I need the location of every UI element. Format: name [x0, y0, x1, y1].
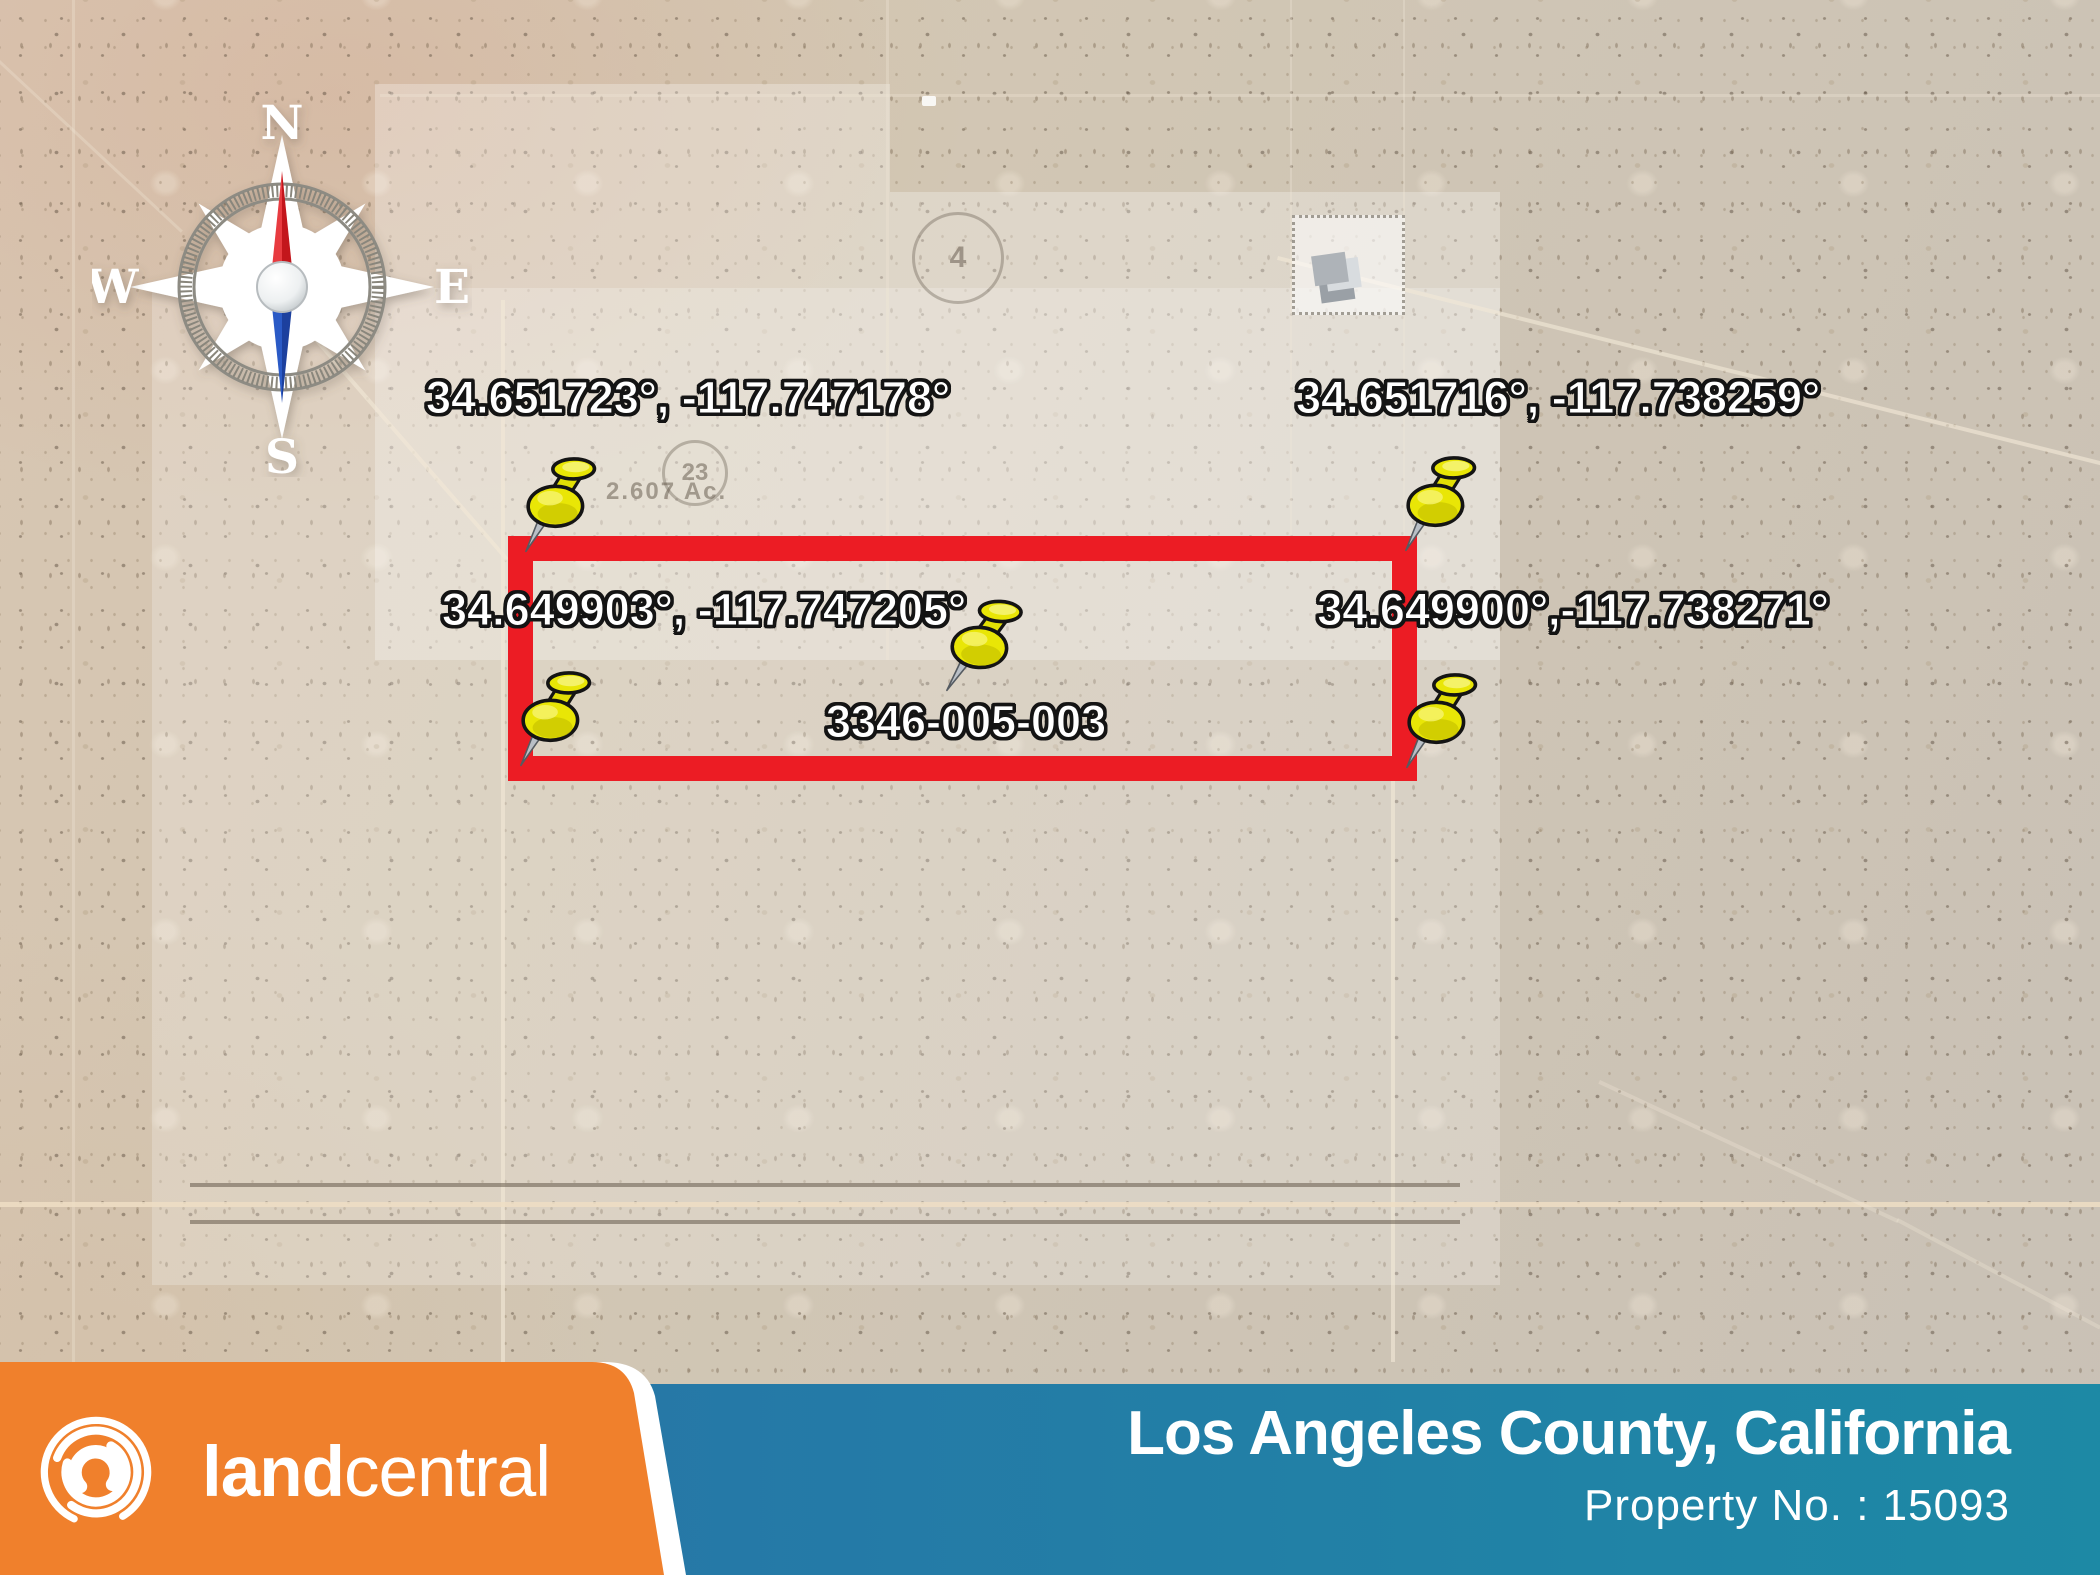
apn-label: 3346-005-003: [826, 696, 1106, 748]
coordinate-label-bottom-right: 34.649900°,-117.738271°: [1317, 584, 1828, 636]
compass-rose-icon: N E S W: [92, 97, 472, 477]
acreage-label: 2.607 Ac.: [606, 478, 727, 506]
compass-south-label: S: [265, 430, 299, 477]
trail-line: [72, 0, 75, 1362]
fenced-compound: [1292, 215, 1405, 315]
compass-east-label: E: [434, 260, 470, 315]
coordinate-label-top-left: 34.651723°, -117.747178°: [426, 372, 950, 424]
lot-number-marker: 4: [912, 212, 1004, 304]
section-line: [380, 94, 2100, 97]
lot-number: 4: [950, 241, 967, 275]
compass-west-label: W: [92, 260, 140, 315]
fence-line: [190, 1220, 1460, 1224]
brand-word-land: land: [202, 1433, 344, 1512]
coordinate-label-bottom-left: 34.649903°, -117.747205°: [442, 584, 966, 636]
property-map-flyer: 23 4 2.607 Ac.: [0, 0, 2100, 1575]
landcentral-logo-icon: [34, 1410, 158, 1534]
footer-text-block: Los Angeles County, California Property …: [1127, 1402, 2010, 1531]
brand-wordmark: landcentral: [202, 1432, 550, 1513]
brand-word-central: central: [344, 1433, 550, 1512]
property-number: Property No. : 15093: [1127, 1481, 2010, 1531]
small-structure: [922, 96, 936, 106]
compass-north-label: N: [261, 97, 304, 151]
fence-line: [190, 1183, 1460, 1187]
county-title: Los Angeles County, California: [1127, 1402, 2010, 1465]
dirt-road: [0, 1202, 2100, 1207]
coordinate-label-top-right: 34.651716°, -117.738259°: [1296, 372, 1820, 424]
brand-lockup: landcentral: [34, 1402, 634, 1542]
